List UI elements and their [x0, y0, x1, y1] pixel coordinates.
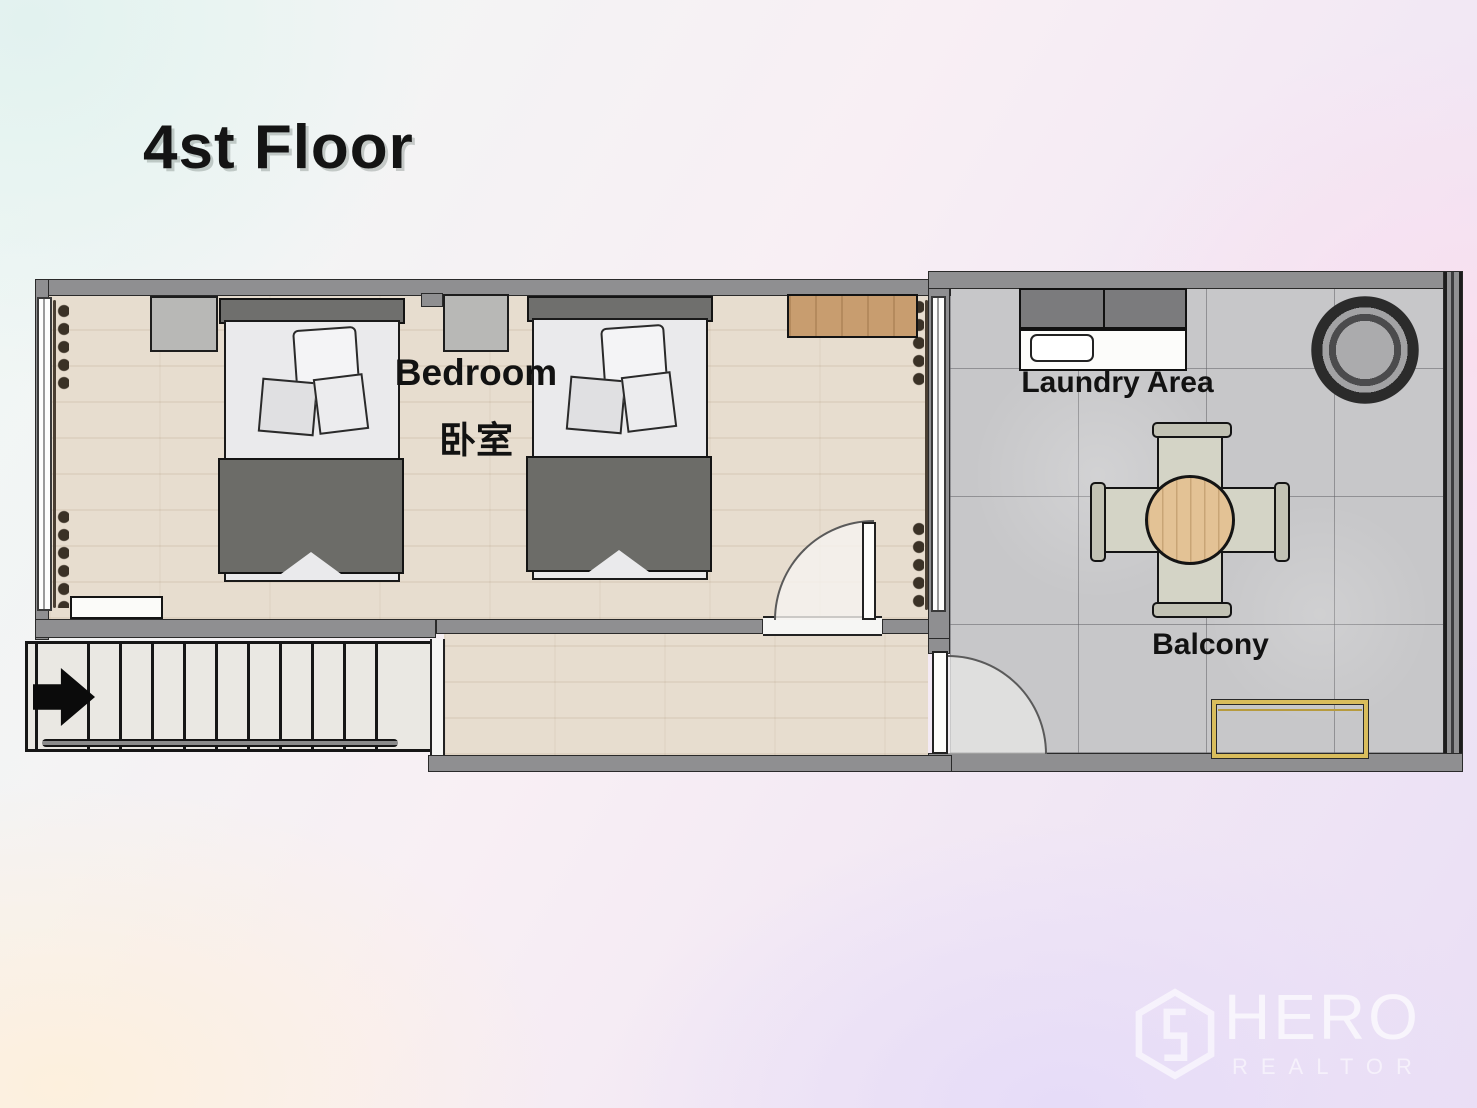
hallway-bottom-wall — [428, 755, 952, 772]
laundry-sink — [1030, 334, 1094, 362]
bed-1-blanket — [218, 458, 404, 574]
bed-2-blanket — [526, 456, 712, 572]
hero-hexagon-logo-icon — [1134, 986, 1216, 1082]
low-shelf — [70, 596, 163, 619]
watermark-tagline: REALTOR — [1232, 1054, 1425, 1080]
bedroom-bottom-wall-left — [35, 619, 436, 638]
nightstand-left — [150, 296, 218, 352]
bed-2-quilt-fold-2 — [621, 371, 677, 433]
watermark-brand: HERO — [1224, 980, 1421, 1054]
chair-north-back — [1152, 422, 1232, 438]
bedroom-label-en: Bedroom — [330, 352, 622, 394]
bed-1-quilt-fold — [258, 378, 318, 437]
balcony-right-wall — [1443, 271, 1463, 772]
wall-notch — [421, 293, 443, 307]
watermark: HERO REALTOR — [1128, 978, 1468, 1093]
balcony-top-wall — [928, 271, 1463, 289]
chair-south-back — [1152, 602, 1232, 618]
balcony-door-leaf — [932, 651, 948, 754]
stair-handrail — [42, 739, 398, 747]
partition-curtain-rail — [925, 300, 928, 610]
chair-east-back — [1274, 482, 1290, 562]
washer-dryer-unit — [1019, 288, 1187, 329]
page-title: 4st Floor — [143, 112, 414, 183]
bedroom-door-leaf — [862, 522, 876, 620]
left-curtain-bottom — [56, 508, 69, 608]
drying-rack — [1212, 700, 1368, 758]
laundry-label: Laundry Area — [985, 366, 1250, 400]
balcony-bottom-wall — [928, 753, 1463, 772]
bedroom-label-zh: 卧室 — [330, 410, 622, 464]
left-curtain-top — [56, 302, 69, 392]
bedroom-left-window — [37, 297, 52, 611]
round-dining-table — [1145, 475, 1235, 565]
round-washing-machine — [1311, 296, 1419, 404]
wooden-desk — [787, 294, 918, 338]
stair-landing — [395, 644, 432, 749]
partition-window — [931, 296, 946, 612]
hallway-top-wall-left — [436, 619, 763, 634]
partition-curtain-bottom — [911, 520, 924, 612]
balcony-label: Balcony — [1108, 628, 1313, 662]
chair-west-back — [1090, 482, 1106, 562]
hallway-floor — [444, 634, 928, 755]
nightstand-middle — [443, 294, 509, 352]
stairs-hallway-threshold — [430, 639, 445, 755]
floor-plan-page: 4st Floor — [0, 0, 1477, 1108]
